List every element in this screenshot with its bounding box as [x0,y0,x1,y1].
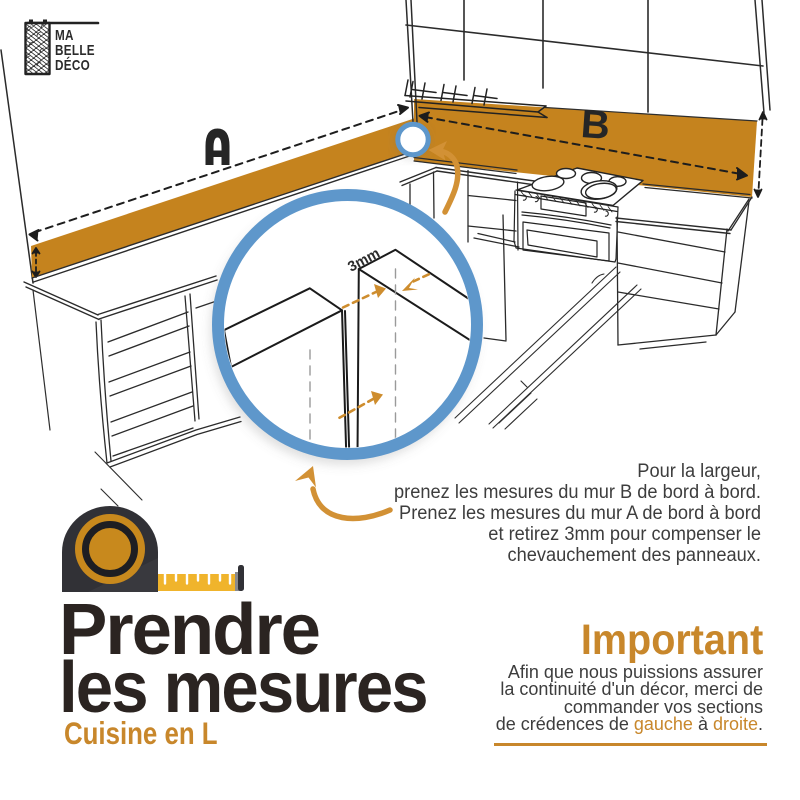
svg-text:B: B [579,102,611,148]
